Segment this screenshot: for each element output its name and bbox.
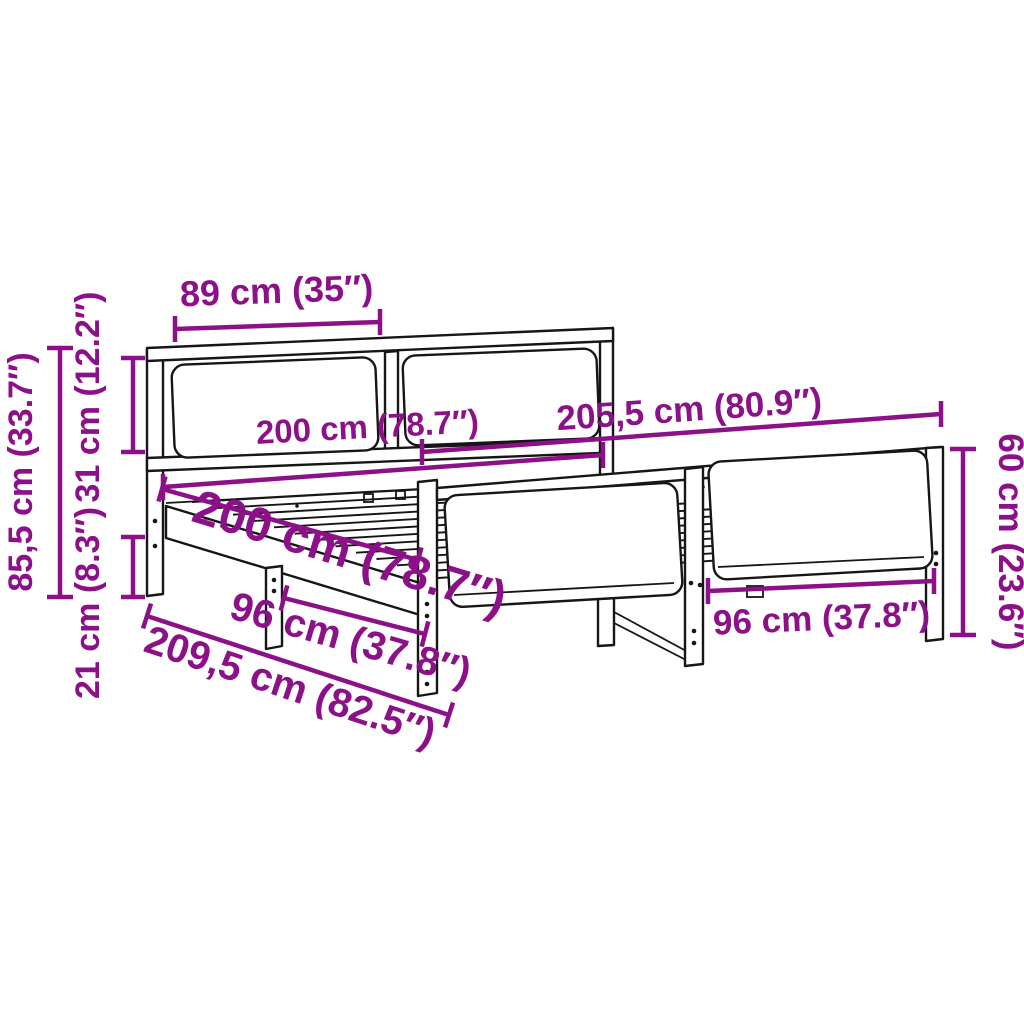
dimension-label-headboard-panel-width: 89 cm (35″) bbox=[179, 267, 374, 315]
dim-headboard-height: 85,5 cm (33.7″) bbox=[2, 348, 73, 597]
dimension-label-headboard-height: 85,5 cm (33.7″) bbox=[2, 352, 40, 591]
bolt-dot bbox=[698, 583, 703, 588]
screw-dot bbox=[295, 504, 299, 508]
dimension-label-footboard-height: 60 cm (23.6″) bbox=[991, 433, 1024, 650]
dim-headboard-top-section: 31 cm (12.2″) bbox=[69, 292, 145, 503]
dimension-label-leg-spacing-right: 96 cm (37.8″) bbox=[712, 594, 931, 642]
dim-leg-height: 21 cm (8.3″) bbox=[69, 507, 145, 699]
dimension-line bbox=[708, 581, 934, 591]
bolt-dot bbox=[272, 589, 277, 594]
bolt-dot bbox=[425, 614, 430, 619]
bolt-dot bbox=[934, 551, 939, 556]
dimension-line bbox=[175, 322, 380, 329]
dimension-label-leg-height: 21 cm (8.3″) bbox=[69, 507, 107, 699]
center-support bbox=[598, 598, 688, 661]
support-leg bbox=[598, 598, 614, 646]
footboard-center-post bbox=[685, 467, 703, 666]
bolt-dot bbox=[934, 562, 939, 567]
slat-bracket bbox=[364, 494, 373, 502]
bolt-dot bbox=[153, 519, 158, 524]
support-brace bbox=[614, 623, 688, 661]
diagram-canvas: 89 cm (35″) 85,5 cm (33.7″) 31 cm (12.2″… bbox=[0, 0, 1024, 1024]
dim-headboard-panel-width: 89 cm (35″) bbox=[175, 267, 380, 342]
bolt-dot bbox=[153, 544, 158, 549]
footboard-right-panel bbox=[708, 450, 933, 580]
support-brace bbox=[614, 612, 688, 652]
bolt-dot bbox=[689, 581, 694, 586]
bolt-dot bbox=[692, 629, 697, 634]
bolt-dot bbox=[692, 641, 697, 646]
bed-dimension-diagram: 89 cm (35″) 85,5 cm (33.7″) 31 cm (12.2″… bbox=[0, 0, 1024, 1024]
bolt-dot bbox=[272, 578, 277, 583]
dimension-label-headboard-top-section: 31 cm (12.2″) bbox=[69, 292, 107, 503]
dim-footboard-height: 60 cm (23.6″) bbox=[950, 433, 1024, 650]
